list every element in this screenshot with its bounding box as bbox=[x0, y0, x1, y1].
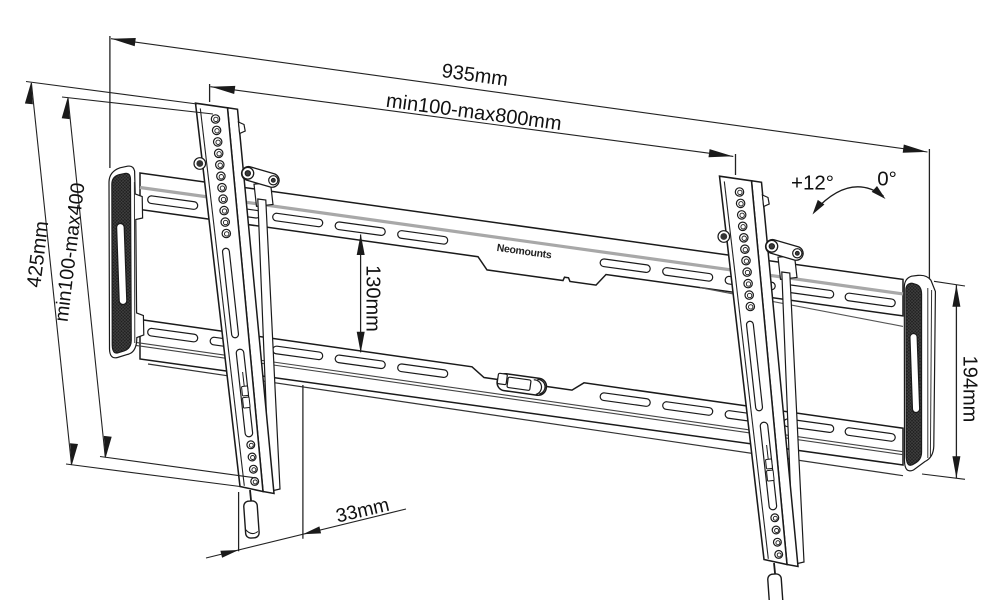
svg-text:+12°: +12° bbox=[791, 172, 834, 195]
svg-text:130mm: 130mm bbox=[362, 265, 384, 332]
svg-text:194mm: 194mm bbox=[959, 356, 981, 423]
svg-text:0°: 0° bbox=[877, 168, 897, 191]
